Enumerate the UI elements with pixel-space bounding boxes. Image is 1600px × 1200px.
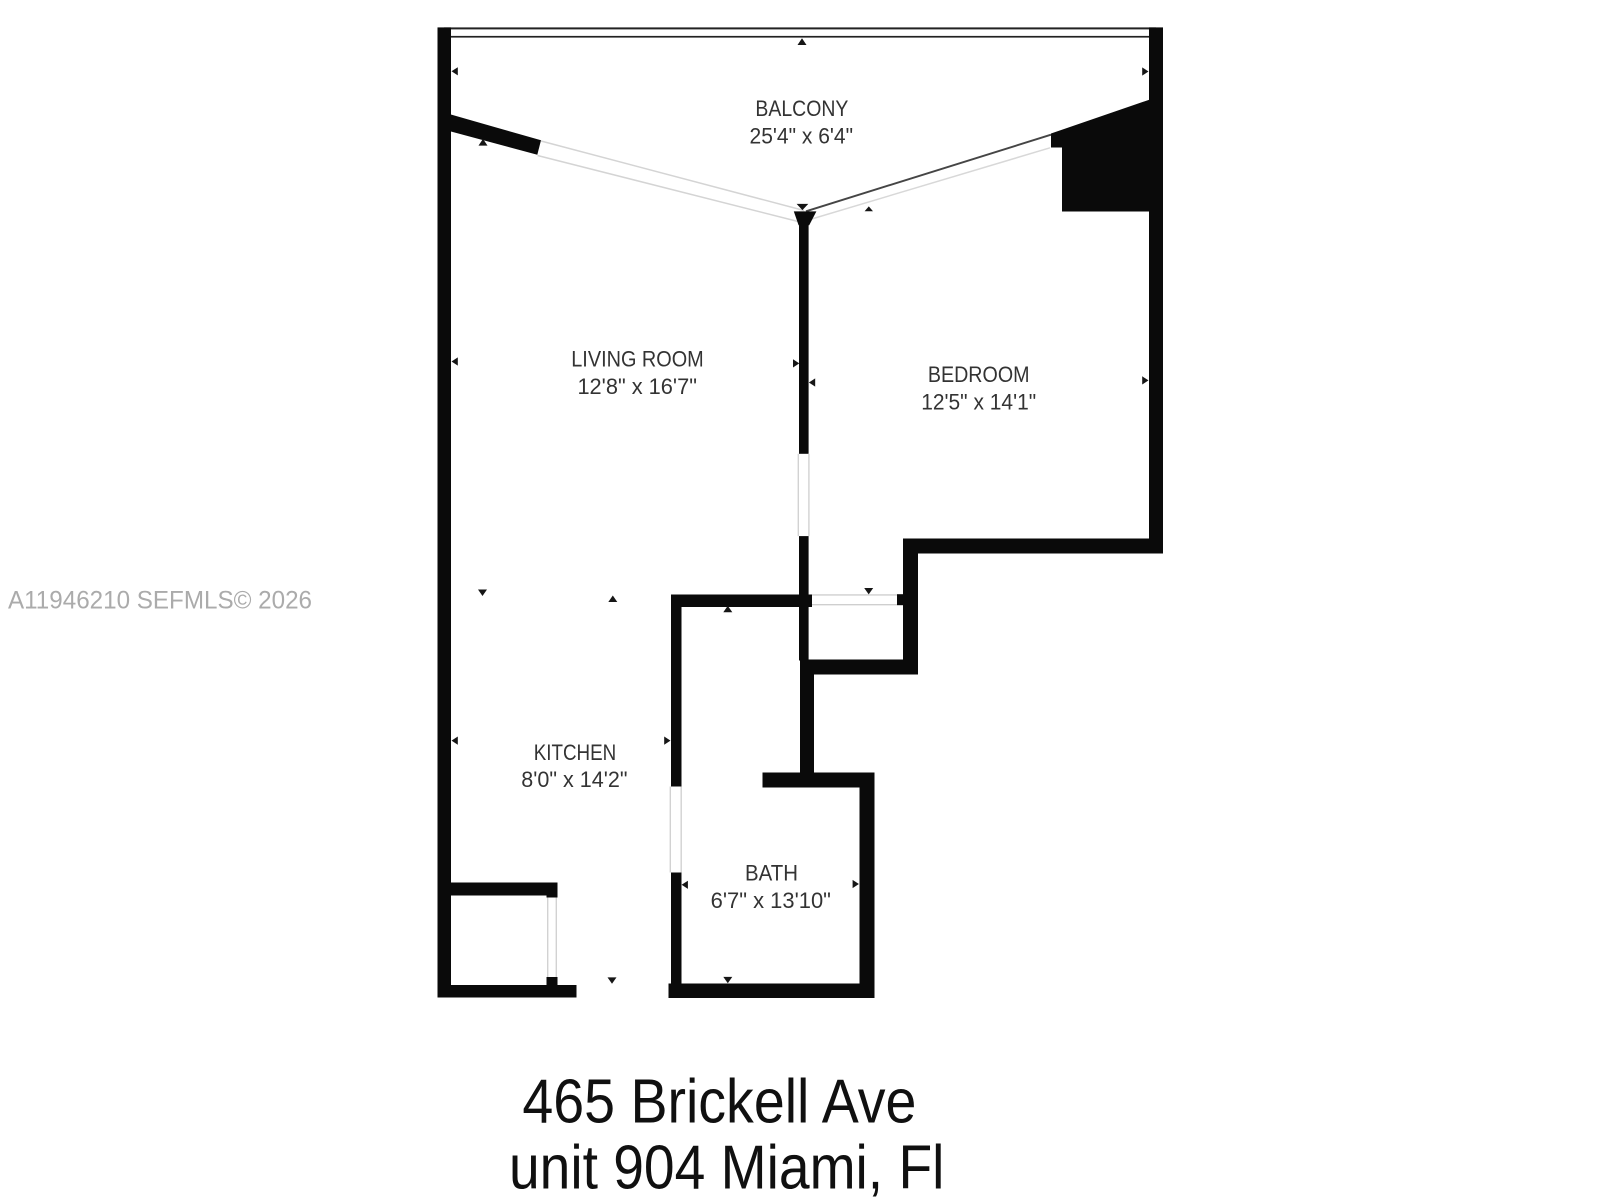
svg-text:BEDROOM: BEDROOM <box>928 362 1030 387</box>
svg-text:465 Brickell Ave: 465 Brickell Ave <box>522 1068 916 1137</box>
svg-text:BALCONY: BALCONY <box>755 96 848 121</box>
svg-text:KITCHEN: KITCHEN <box>534 740 617 765</box>
svg-text:BATH: BATH <box>745 860 798 885</box>
svg-text:6'7" x 13'10": 6'7" x 13'10" <box>711 888 831 913</box>
svg-text:A11946210 SEFMLS© 2026: A11946210 SEFMLS© 2026 <box>8 587 312 615</box>
svg-text:LIVING ROOM: LIVING ROOM <box>571 346 704 371</box>
svg-text:12'5" x 14'1": 12'5" x 14'1" <box>921 390 1036 415</box>
svg-text:12'8" x 16'7": 12'8" x 16'7" <box>577 374 697 399</box>
svg-text:8'0" x 14'2": 8'0" x 14'2" <box>521 767 627 792</box>
svg-text:25'4" x 6'4": 25'4" x 6'4" <box>750 124 854 149</box>
svg-text:unit 904 Miami, Fl: unit 904 Miami, Fl <box>509 1134 945 1200</box>
